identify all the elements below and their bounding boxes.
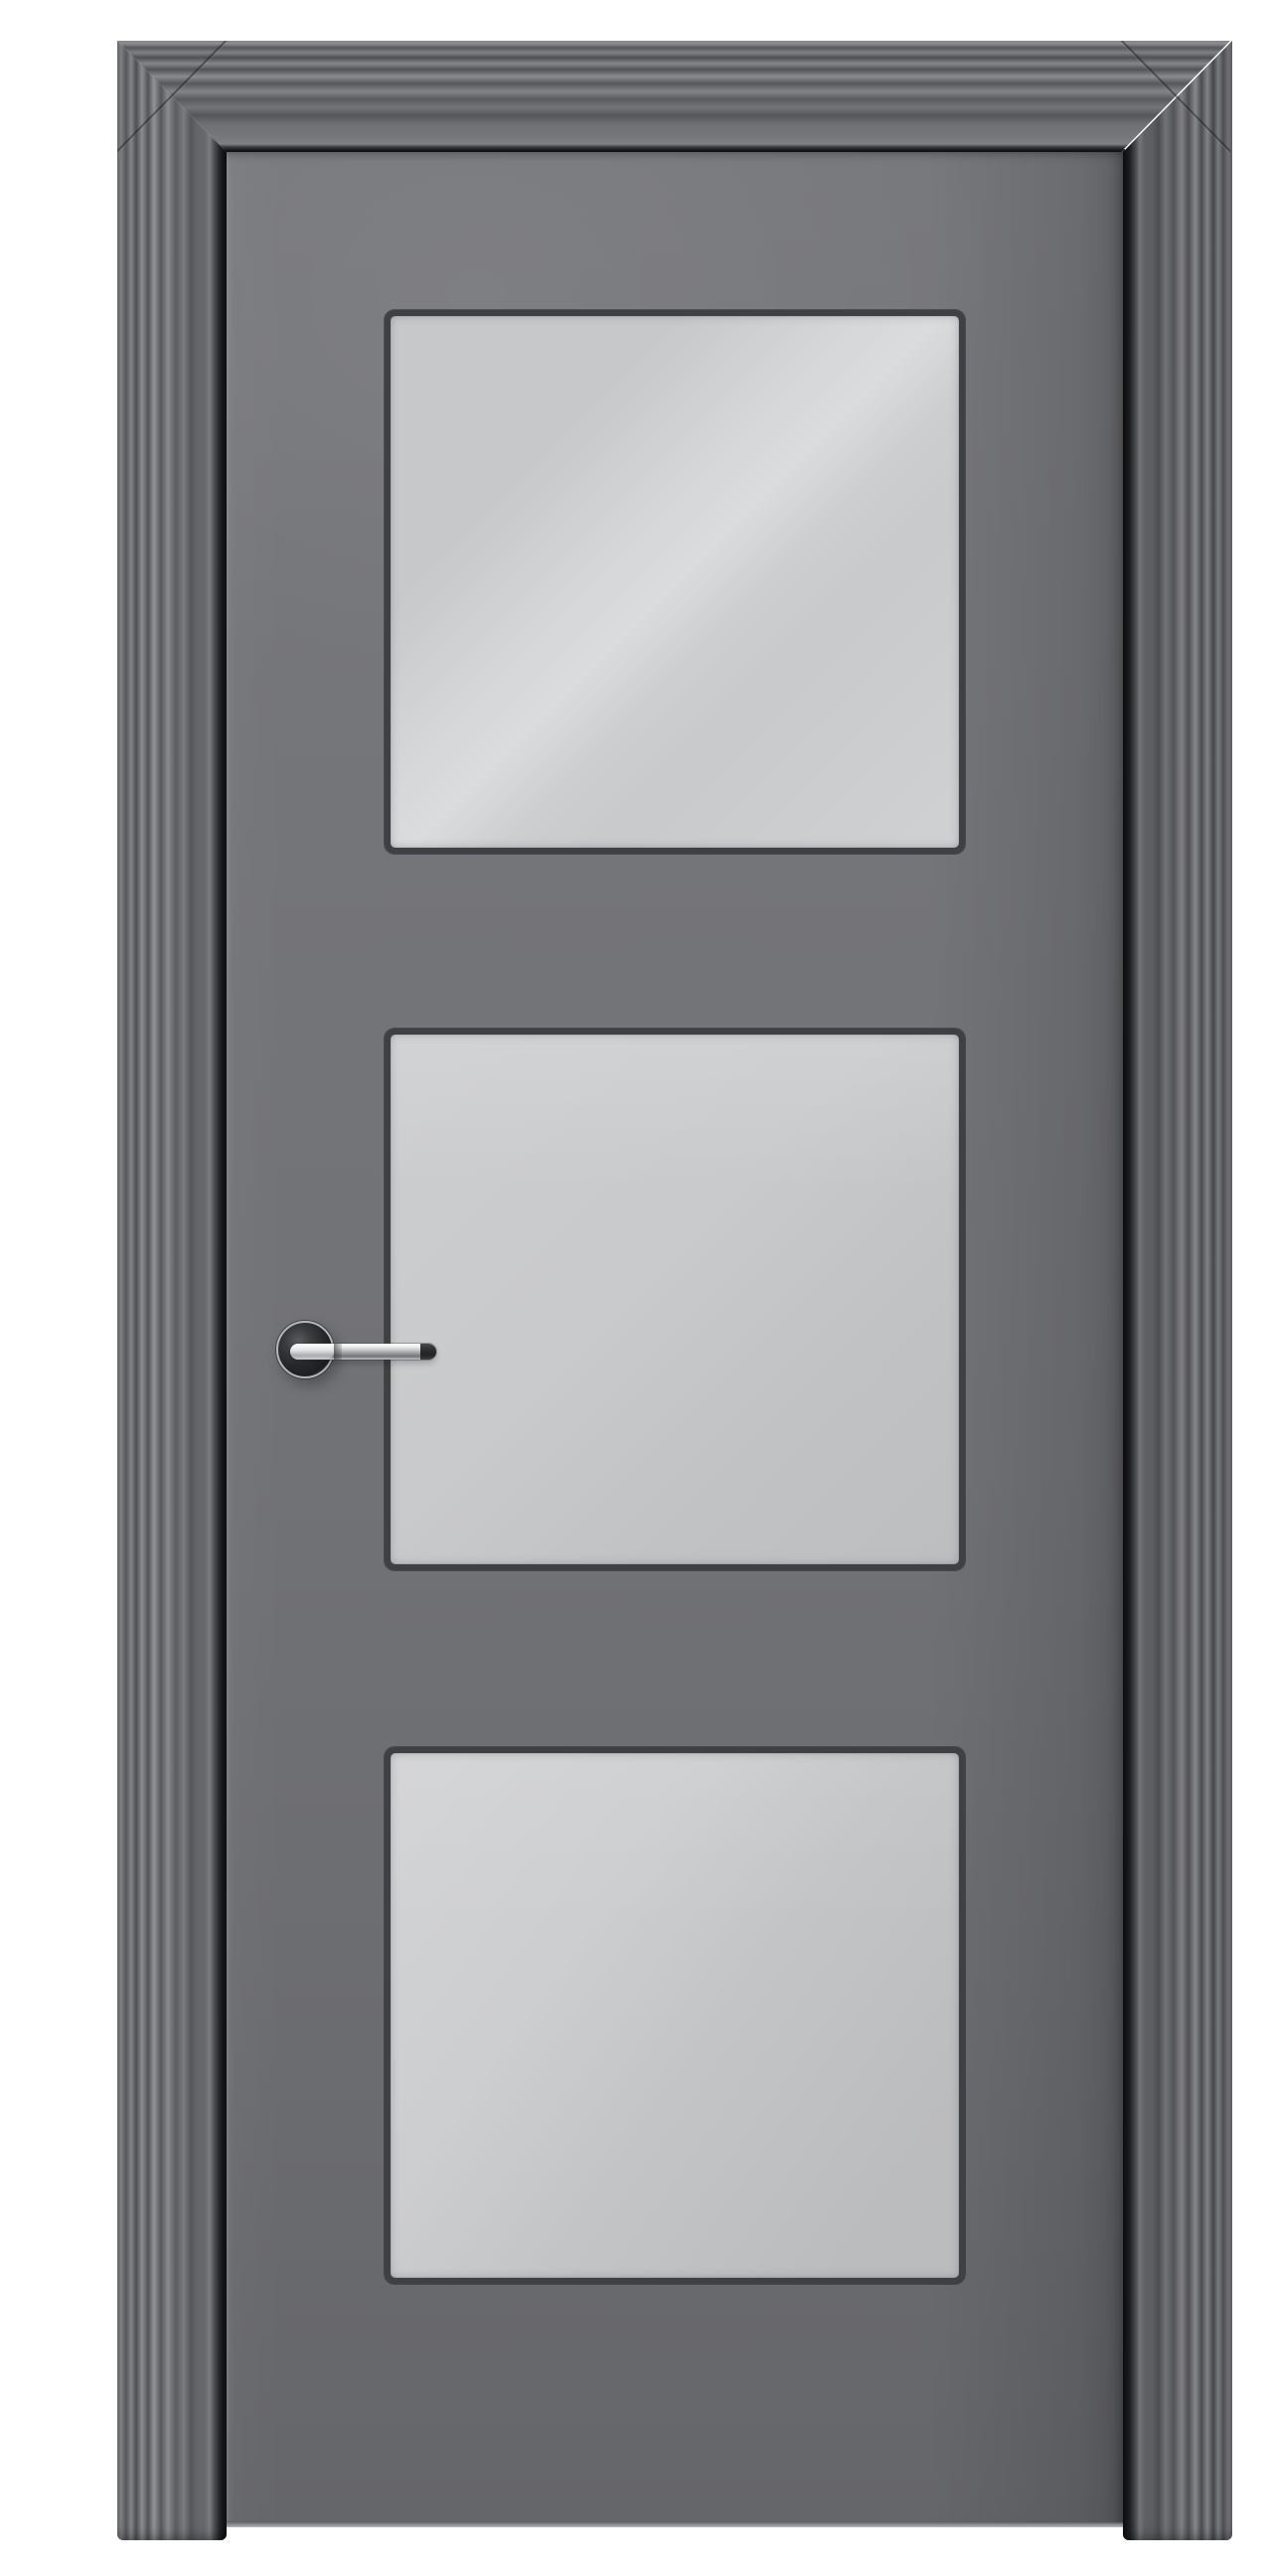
frosted-glass-bottom	[391, 1753, 959, 2278]
handle-lever-neck	[334, 1344, 342, 1360]
frosted-glass-middle	[391, 1035, 959, 1564]
handle-lever-cap	[290, 1344, 334, 1360]
door-product-photo	[40, 16, 1272, 2560]
door-leaf-bottom-edge	[225, 2521, 1125, 2527]
miter-joint-top-left	[117, 41, 227, 152]
glass-panel-middle	[385, 1029, 965, 1570]
frosted-glass-top	[391, 316, 959, 848]
miter-joint-top-right	[1121, 41, 1230, 152]
handle-lever-tip	[420, 1344, 436, 1360]
glass-panel-bottom	[385, 1747, 965, 2284]
handle-lever	[290, 1344, 436, 1360]
glass-panel-top	[385, 310, 965, 854]
door-casing-header	[117, 41, 1230, 152]
door-casing-right	[1123, 41, 1232, 2540]
door-casing-left	[117, 41, 227, 2540]
